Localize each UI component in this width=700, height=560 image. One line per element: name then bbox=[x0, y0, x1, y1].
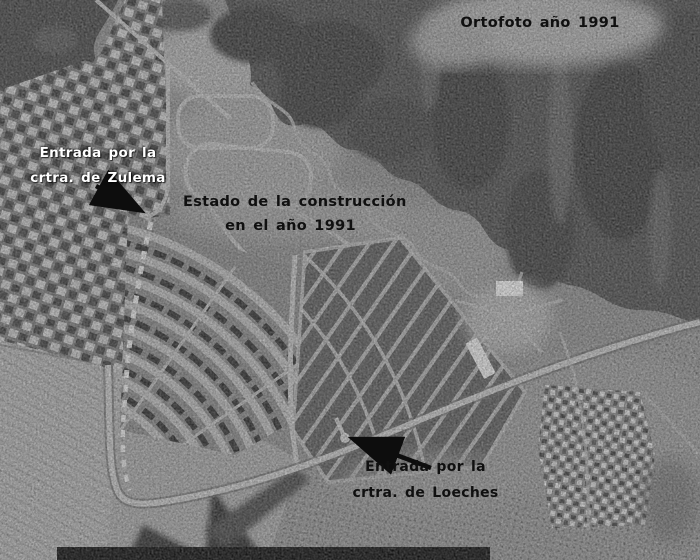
annotation-arrows bbox=[0, 0, 700, 560]
zulema-arrow-icon bbox=[96, 186, 138, 209]
loeches-arrow-icon bbox=[356, 440, 431, 468]
annotated-orthophoto: Ortofoto año 1991 Entrada por la crtra. … bbox=[0, 0, 700, 560]
